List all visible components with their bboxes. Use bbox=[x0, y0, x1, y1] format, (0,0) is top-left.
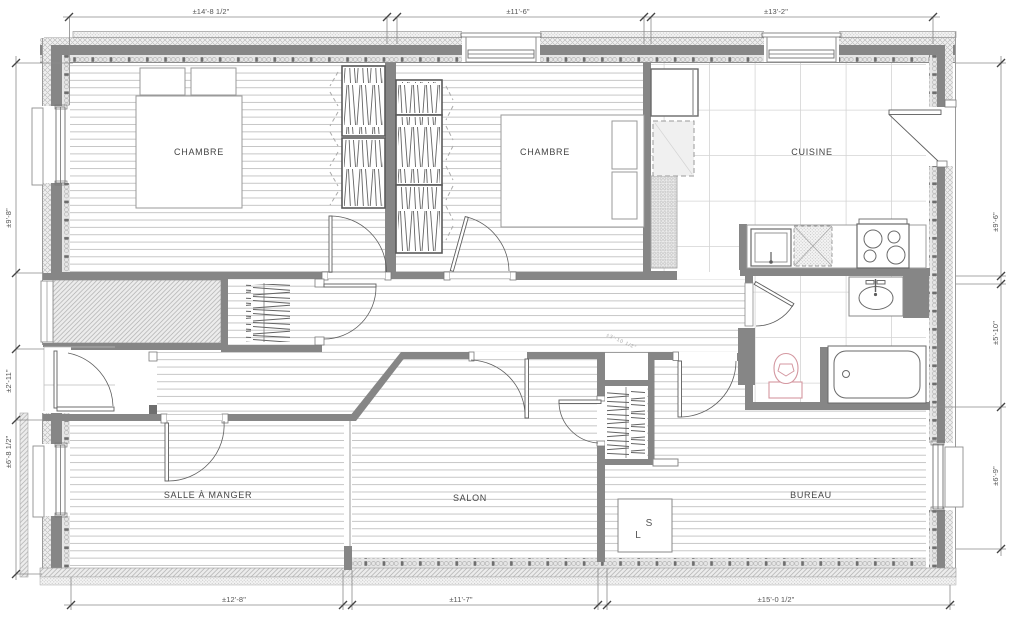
svg-text:±9'-6": ±9'-6" bbox=[991, 212, 1000, 232]
svg-text:L: L bbox=[635, 530, 641, 541]
svg-text:±12'-8": ±12'-8" bbox=[222, 595, 246, 604]
svg-text:BUREAU: BUREAU bbox=[790, 490, 832, 500]
svg-text:SALLE À MANGER: SALLE À MANGER bbox=[164, 490, 252, 500]
svg-text:±15'-0 1/2": ±15'-0 1/2" bbox=[758, 595, 795, 604]
svg-text:±9'-8": ±9'-8" bbox=[4, 208, 13, 228]
svg-text:±2'-11": ±2'-11" bbox=[4, 369, 13, 393]
svg-text:±6'-9": ±6'-9" bbox=[991, 466, 1000, 486]
svg-text:±5'-10": ±5'-10" bbox=[991, 321, 1000, 345]
svg-text:±11'-6": ±11'-6" bbox=[506, 7, 530, 16]
svg-text:CHAMBRE: CHAMBRE bbox=[174, 147, 224, 157]
svg-text:±11'-7": ±11'-7" bbox=[449, 595, 473, 604]
svg-text:S: S bbox=[646, 518, 653, 529]
svg-text:CHAMBRE: CHAMBRE bbox=[520, 147, 570, 157]
svg-text:±6'-8 1/2": ±6'-8 1/2" bbox=[4, 435, 13, 468]
svg-text:SALON: SALON bbox=[453, 493, 487, 503]
svg-text:±13'-2": ±13'-2" bbox=[764, 7, 788, 16]
svg-text:CUISINE: CUISINE bbox=[791, 147, 832, 157]
svg-text:±14'-8 1/2": ±14'-8 1/2" bbox=[193, 7, 230, 16]
